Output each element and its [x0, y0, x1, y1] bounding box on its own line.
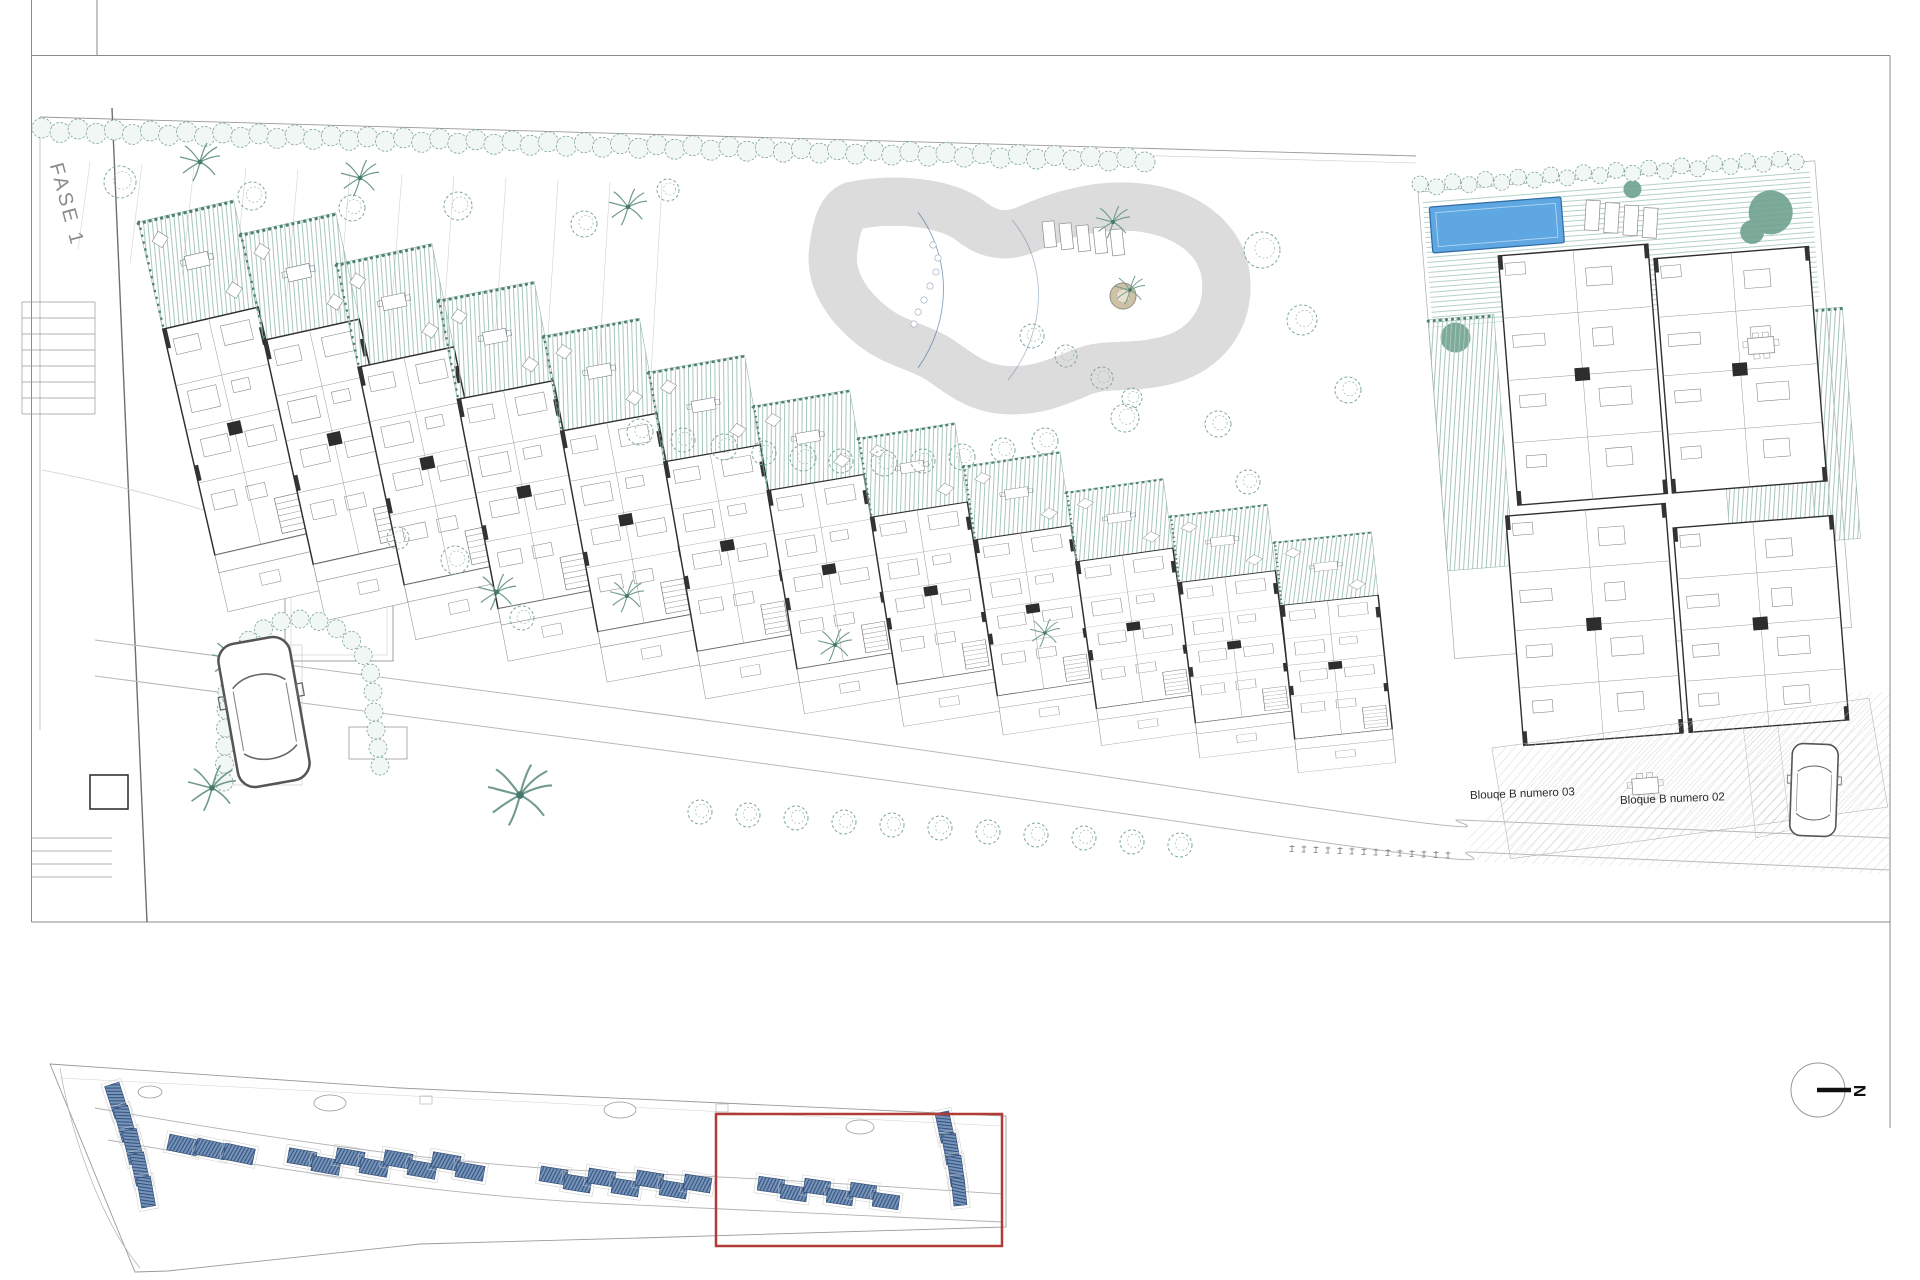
- main-pool: [833, 202, 1227, 391]
- stairs-top-left: [22, 302, 95, 414]
- north-arrow: [1791, 1063, 1851, 1117]
- pool-water: [833, 202, 1227, 391]
- stairs-bottom-left: [32, 838, 112, 877]
- site-plan-drawing: [0, 0, 1920, 1280]
- minimap-boundary: [50, 1064, 1006, 1272]
- site-plan-sheet: FASE 1 Blouqe B numero 03 Bloque B numer…: [0, 0, 1920, 1280]
- utility-box: [90, 775, 128, 809]
- north-label: N: [1849, 1085, 1869, 1097]
- lap-pool: [1429, 197, 1564, 253]
- pool-steps: [911, 242, 941, 327]
- minimap: [50, 1064, 1006, 1272]
